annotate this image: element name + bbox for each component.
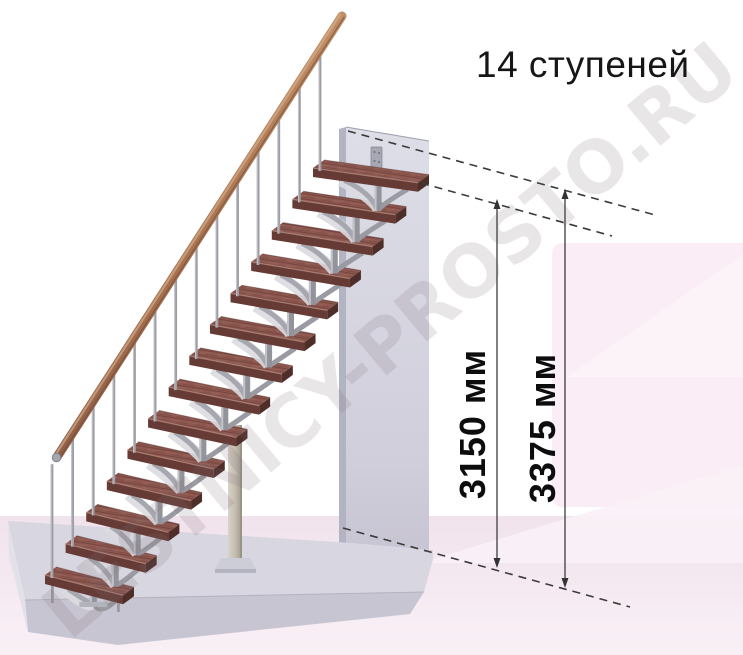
dashed-line-floor: [343, 528, 630, 607]
dimension-label-3375: 3375 мм: [522, 353, 564, 503]
stairs-dimension-diagram: LESTNICY-PROSTO.RU 14 ступеней 3150 мм 3…: [0, 0, 743, 655]
dashed-line-top-step: [421, 183, 612, 236]
dashed-line-wall-top: [348, 131, 655, 215]
dimension-annotations: [0, 0, 743, 655]
dimension-line-3150: [494, 199, 501, 568]
dimension-label-3150: 3150 мм: [452, 349, 494, 499]
diagram-title: 14 ступеней: [476, 44, 690, 86]
